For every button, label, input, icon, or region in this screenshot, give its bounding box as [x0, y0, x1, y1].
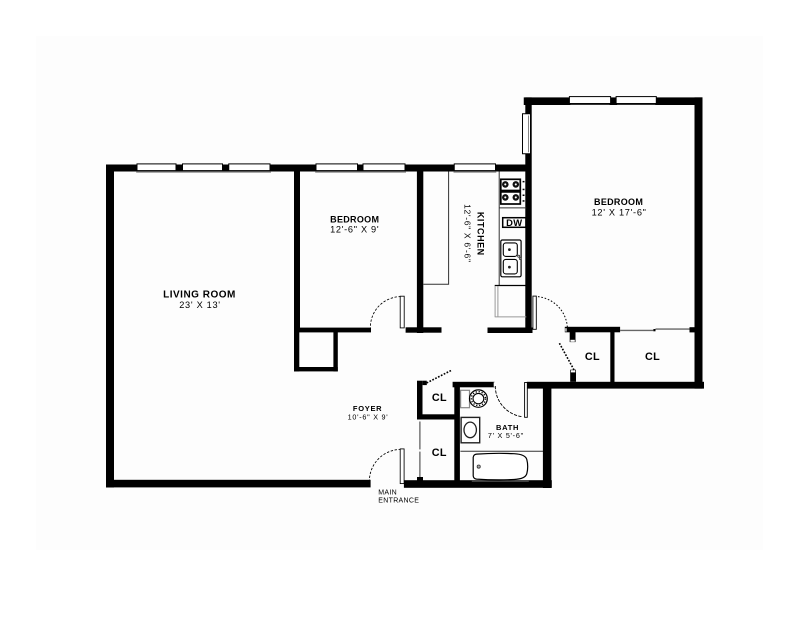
- svg-text:CL: CL: [432, 392, 447, 404]
- svg-text:CL: CL: [585, 351, 600, 363]
- svg-text:12'-6" X 6'-6": 12'-6" X 6'-6": [463, 204, 473, 263]
- svg-text:KITCHEN: KITCHEN: [475, 212, 485, 256]
- svg-text:BEDROOM: BEDROOM: [594, 197, 643, 207]
- svg-text:DW: DW: [506, 217, 522, 228]
- svg-text:MAIN: MAIN: [378, 490, 397, 497]
- svg-text:12'-6" X 9': 12'-6" X 9': [330, 225, 379, 235]
- svg-text:CL: CL: [432, 447, 447, 459]
- svg-text:7' X 5'-6": 7' X 5'-6": [488, 431, 524, 440]
- svg-text:ENTRANCE: ENTRANCE: [378, 497, 419, 504]
- svg-text:LIVING ROOM: LIVING ROOM: [163, 290, 236, 301]
- svg-text:12' X 17'-6": 12' X 17'-6": [592, 208, 647, 218]
- svg-text:BEDROOM: BEDROOM: [330, 214, 379, 224]
- svg-text:10'-6" X 9': 10'-6" X 9': [348, 412, 389, 421]
- svg-text:23' X 13': 23' X 13': [179, 300, 220, 310]
- svg-text:CL: CL: [645, 351, 660, 363]
